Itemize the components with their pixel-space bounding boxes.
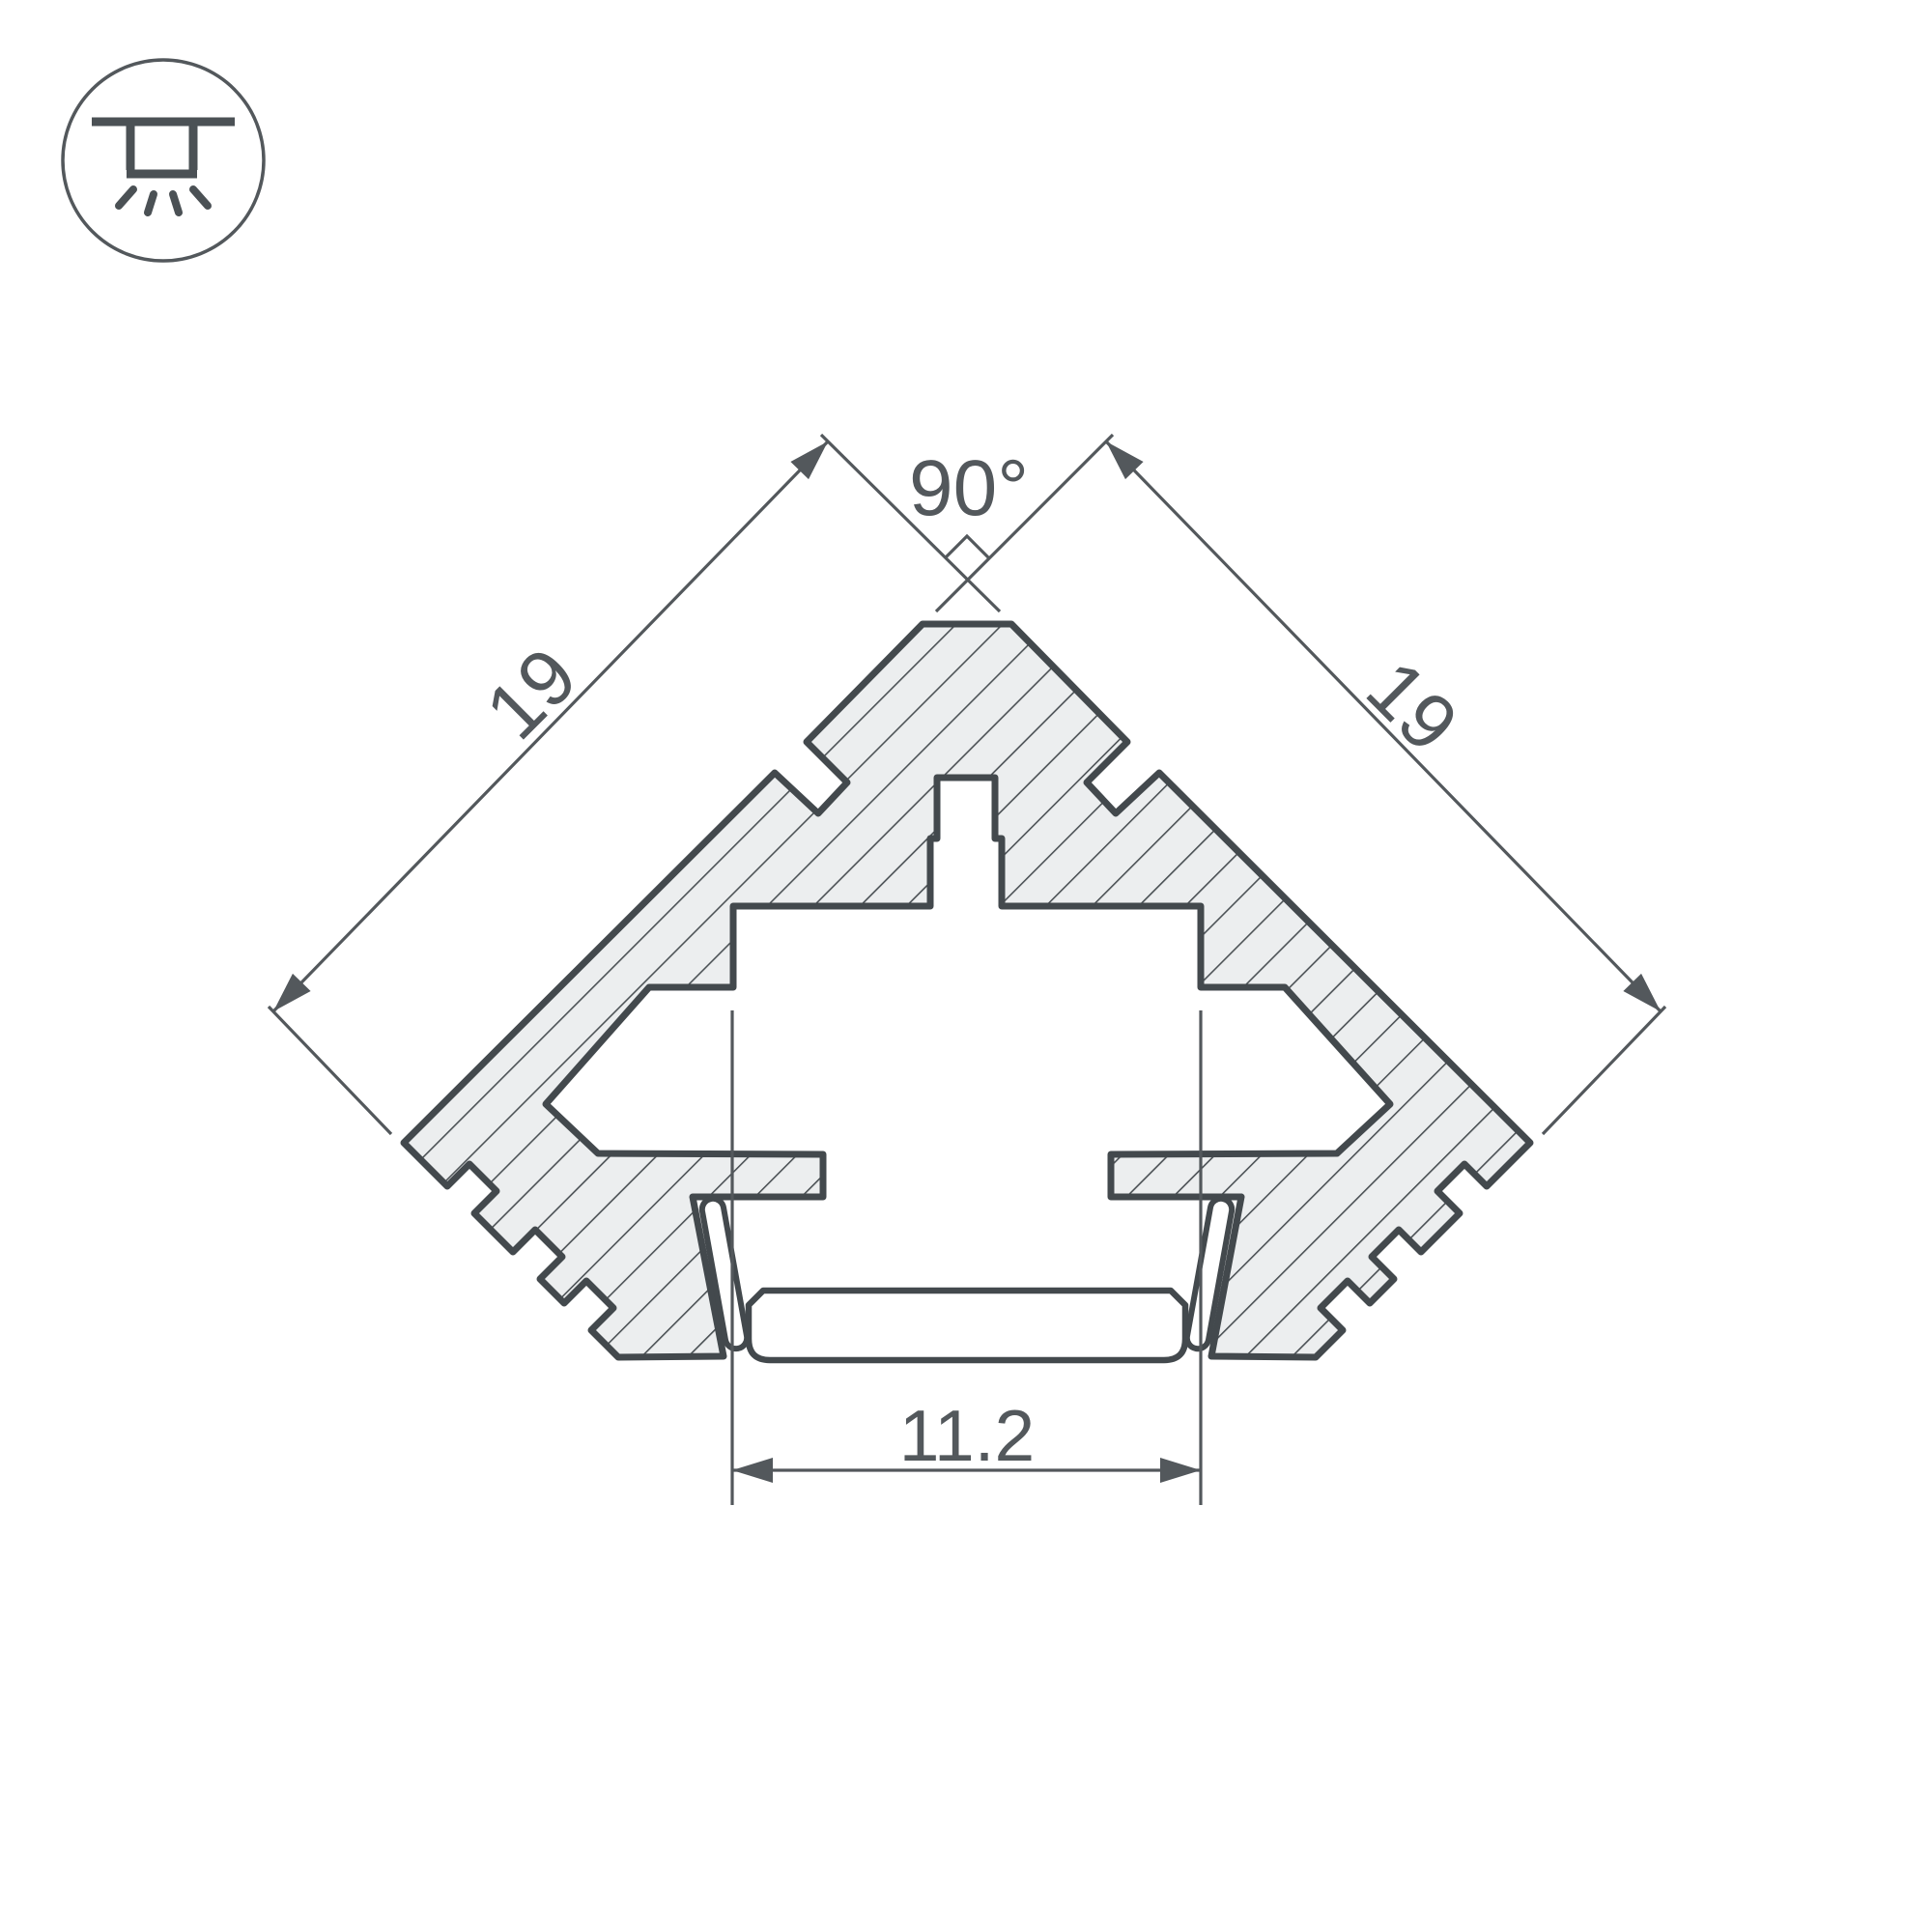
right-angle-marker [945,536,989,558]
extension-line-left-corner [269,1007,391,1134]
profile-body [404,624,1530,1357]
icon-circle [63,60,264,261]
technical-drawing: 90° 19 19 11.2 [0,0,1932,1932]
icon-fixture [92,122,235,174]
recessed-downlight-icon [63,60,264,261]
diffuser [749,1291,1185,1360]
left-edge-label: 19 [469,632,594,756]
icon-light-rays [119,189,208,213]
extension-line-right-corner [1543,1007,1665,1134]
channel-width-label: 11.2 [899,1395,1035,1476]
right-edge-label: 19 [1350,644,1474,769]
angle-label: 90° [909,444,1029,532]
drawing-page: 90° 19 19 11.2 [0,0,1932,1932]
